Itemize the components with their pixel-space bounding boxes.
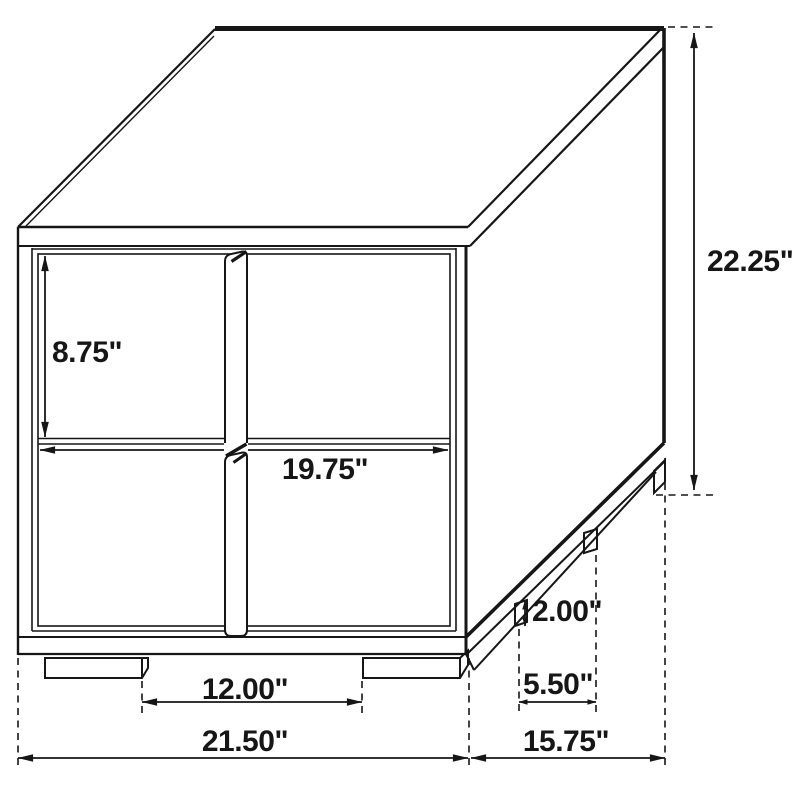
label-overall-width: 21.50" xyxy=(202,725,288,758)
label-opening-width: 19.75" xyxy=(282,453,368,486)
diagram-canvas: 8.75" 19.75" 22.25" 2.00" 5.50" 12.00" 2… xyxy=(0,0,800,800)
nightstand-dimension-diagram: 8.75" 19.75" 22.25" 2.00" 5.50" 12.00" 2… xyxy=(0,0,800,800)
top-left-edge xyxy=(18,29,215,227)
top-slab-side-bottom xyxy=(470,47,664,246)
label-front-leg-spacing: 12.00" xyxy=(202,673,288,706)
label-side-leg-spacing: 5.50" xyxy=(523,668,593,701)
handle-upper-section xyxy=(225,251,247,444)
top-left-edge-inner xyxy=(26,36,214,226)
handle-lower-section xyxy=(225,452,247,636)
legs xyxy=(45,460,665,678)
dimension-labels: 8.75" 19.75" 22.25" 2.00" 5.50" 12.00" 2… xyxy=(52,245,793,758)
top-right-edge xyxy=(468,29,661,227)
label-overall-depth: 15.75" xyxy=(523,725,609,758)
drawer-handle xyxy=(224,251,248,636)
side-back-leg xyxy=(654,460,665,493)
label-overall-height: 22.25" xyxy=(707,245,793,278)
label-drawer-height: 8.75" xyxy=(52,336,122,369)
front-left-leg xyxy=(45,658,148,678)
label-base-height: 2.00" xyxy=(532,595,602,628)
base-side-bottom xyxy=(474,472,656,670)
